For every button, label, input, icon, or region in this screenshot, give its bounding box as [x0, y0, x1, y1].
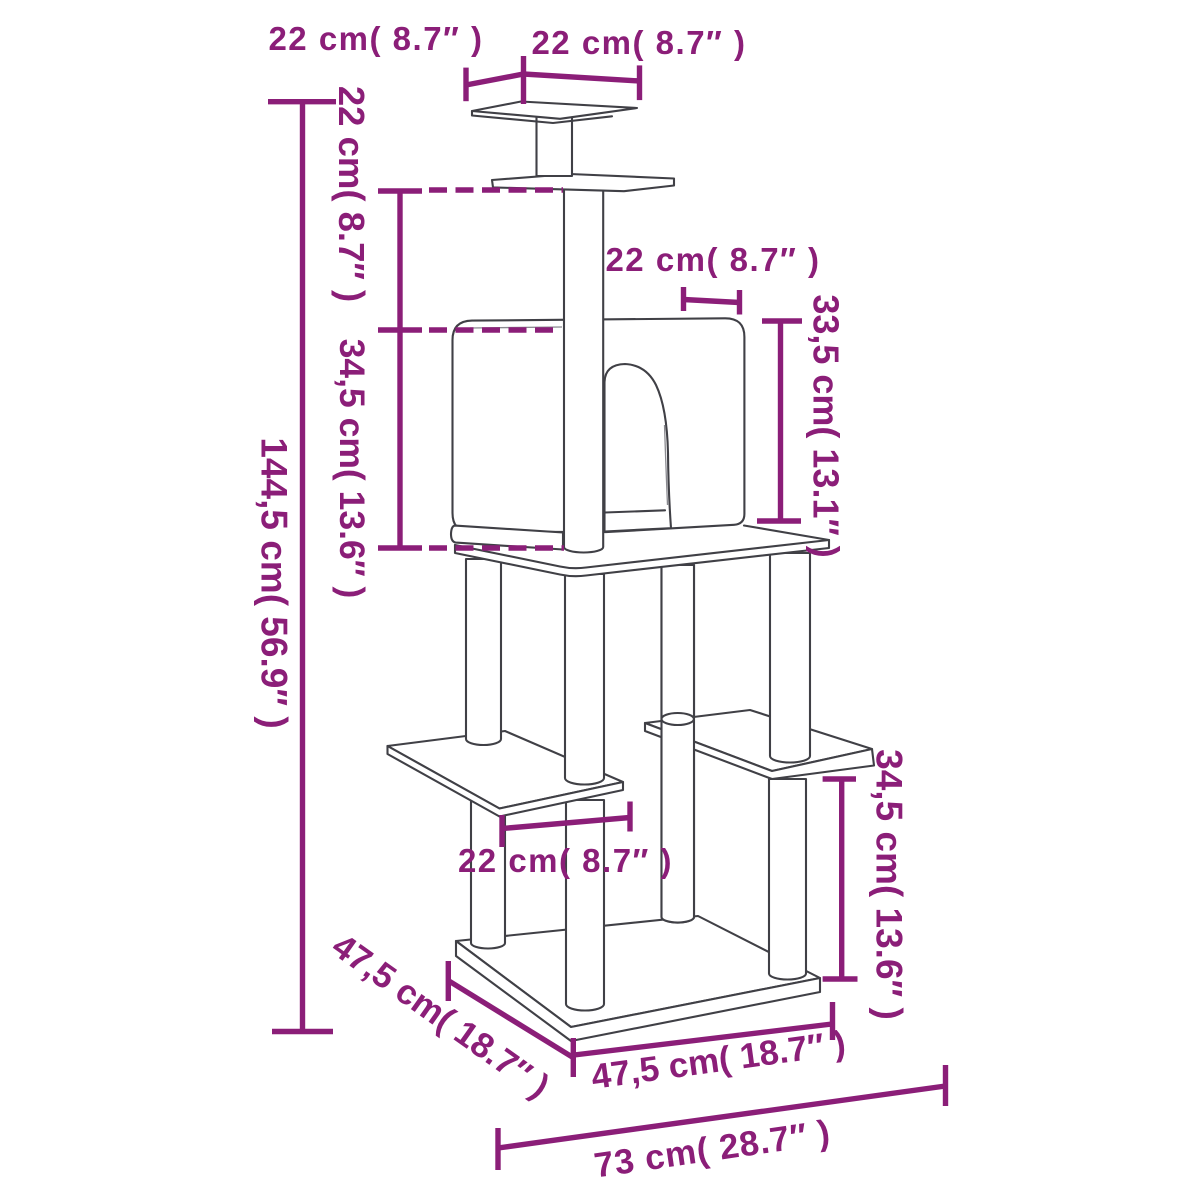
svg-text:34,5 cm( 13.6″ ): 34,5 cm( 13.6″ ) — [869, 749, 910, 1020]
svg-text:22 cm( 8.7″ ): 22 cm( 8.7″ ) — [268, 20, 483, 57]
svg-text:22 cm( 8.7″ ): 22 cm( 8.7″ ) — [605, 241, 820, 278]
svg-text:34,5 cm( 13.6″ ): 34,5 cm( 13.6″ ) — [332, 339, 372, 599]
svg-text:22 cm( 8.7″ ): 22 cm( 8.7″ ) — [531, 24, 746, 61]
svg-text:22 cm( 8.7″ ): 22 cm( 8.7″ ) — [458, 842, 673, 879]
svg-text:144,5 cm( 56.9″ ): 144,5 cm( 56.9″ ) — [254, 437, 295, 728]
svg-text:33,5 cm( 13.1″ ): 33,5 cm( 13.1″ ) — [806, 294, 847, 557]
svg-text:22 cm( 8.7″ ): 22 cm( 8.7″ ) — [331, 86, 372, 302]
